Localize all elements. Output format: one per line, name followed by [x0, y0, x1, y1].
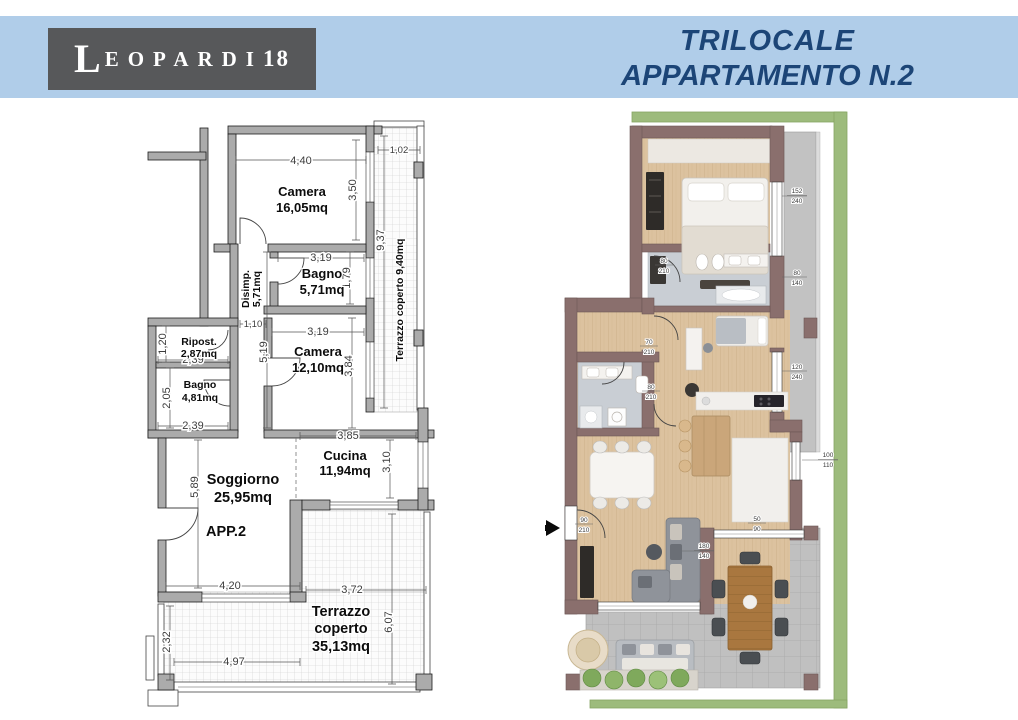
dim-label: 3,72: [341, 584, 362, 596]
wardrobe: [646, 172, 664, 230]
floorplan-flyer: L EOPARDI 18 TRILOCALE APPARTAMENTO N.2: [0, 0, 1018, 720]
room-area-bagno2: 4,81mq: [182, 392, 218, 404]
dining-chair: [593, 441, 607, 453]
dim-label: 3,10: [381, 451, 393, 472]
outdoor-chair: [740, 652, 760, 664]
window-size-label: 50: [753, 516, 761, 523]
technical-floor-plan-2d: 4,40 1,02 3,50 9,37 3,19 1,79 1,10 5,19 …: [140, 110, 460, 715]
outdoor-chair: [740, 552, 760, 564]
room-area-camera2: 12,10mq: [292, 360, 344, 375]
window-size-label: 120: [792, 364, 803, 371]
dim-label: 1,20: [157, 333, 169, 354]
door-size-label: 80: [660, 258, 668, 265]
window-size-label: 110: [823, 462, 834, 469]
window-size-label: 240: [792, 374, 803, 381]
dim-label: 2,32: [161, 631, 173, 652]
room-area-soggiorno: 25,95mq: [214, 490, 272, 506]
dim-label: 4,97: [223, 656, 244, 668]
door-size-label: 90: [580, 517, 588, 524]
room-label-ripost: Ripost.: [181, 336, 217, 348]
dim-label: 3,19: [310, 252, 331, 264]
room-label-terrazzo-2: coperto: [314, 621, 367, 637]
door-size-label: 210: [644, 349, 655, 356]
room-area-cucina: 11,94mq: [319, 463, 370, 478]
door-size-label: 70: [645, 339, 653, 346]
outdoor-chair: [775, 580, 788, 598]
outdoor-sofa: [616, 640, 694, 674]
toilet-2: [636, 376, 648, 393]
entrance-arrow-icon: [546, 520, 560, 536]
logo-box: L EOPARDI 18: [48, 28, 316, 90]
dim-label: 3,50: [347, 179, 359, 200]
door-size-label: 210: [579, 527, 590, 534]
dining-chair: [615, 497, 629, 509]
toilet: [696, 254, 708, 270]
room-label-cucina: Cucina: [323, 448, 367, 463]
desk: [686, 328, 702, 370]
outdoor-chair: [712, 580, 725, 598]
room-label-terrazzo-1: Terrazzo: [312, 604, 371, 620]
outdoor-chair: [775, 618, 788, 636]
page-title: TRILOCALE APPARTAMENTO N.2: [555, 24, 980, 95]
window-size-label: 90: [753, 526, 761, 533]
dim-label: 2,39: [182, 420, 203, 432]
window-size-label: 240: [792, 198, 803, 205]
room-label-soggiorno: Soggiorno: [207, 472, 280, 488]
hanging-chair: [568, 630, 608, 670]
terrace-pillar: [804, 318, 817, 338]
room-label-bagno2: Bagno: [184, 379, 217, 391]
room-area-ripost: 2,87mq: [181, 348, 217, 360]
room-label-camera1: Camera: [278, 184, 326, 199]
dining-chair: [593, 497, 607, 509]
dim-label: 1,02: [390, 145, 409, 156]
kitchen-island-table: [692, 416, 730, 476]
kitchen-peninsula: [732, 438, 788, 522]
planter-bushes: [580, 669, 698, 690]
dining-chair: [637, 497, 651, 509]
stool: [679, 460, 691, 472]
logo-text: EOPARDI: [105, 47, 263, 72]
header-banner: L EOPARDI 18 TRILOCALE APPARTAMENTO N.2: [0, 16, 1018, 98]
dining-chair: [637, 441, 651, 453]
pouf: [646, 544, 662, 560]
dining-table: [590, 452, 654, 498]
room-area-camera1: 16,05mq: [276, 200, 328, 215]
window-size-label: 100: [823, 452, 834, 459]
window-size-label: 140: [699, 553, 710, 560]
room-area-terrazzo: 35,13mq: [312, 639, 370, 655]
dining-chair: [615, 441, 629, 453]
dim-label: 5,19: [258, 341, 270, 362]
dim-label: 3,85: [337, 430, 358, 442]
dim-label: 4,20: [219, 580, 240, 592]
door-size-label: 210: [646, 394, 657, 401]
apartment-number-label: APP.2: [206, 524, 246, 540]
stool: [679, 440, 691, 452]
title-line-2: APPARTAMENTO N.2: [555, 59, 980, 94]
tv-unit: [580, 546, 594, 598]
bidet: [712, 254, 724, 270]
logo-initial: L: [74, 39, 101, 79]
room-label-terrazzo-lato: Terrazzo coperto 9,40mq: [394, 239, 406, 362]
outdoor-chair: [712, 618, 725, 636]
window-size-label: 152: [792, 188, 803, 195]
window-size-label: 180: [699, 543, 710, 550]
room-area-disimp: 5,71mq: [251, 271, 263, 307]
kitchen-sink: [702, 397, 710, 405]
door-size-label: 210: [659, 268, 670, 275]
room-area-bagno1: 5,71mq: [300, 282, 345, 297]
room-label-bagno1: Bagno: [302, 266, 343, 281]
room-label-camera2: Camera: [294, 344, 342, 359]
rendered-floor-plan-3d: 152 240 80 140 120 240 100 110 50 90 180…: [545, 105, 865, 715]
window-size-label: 140: [792, 280, 803, 287]
dim-label: 3,19: [307, 326, 328, 338]
desk-chair: [703, 343, 713, 353]
door-size-label: 80: [647, 384, 655, 391]
stool: [679, 420, 691, 432]
dim-label: 2,05: [161, 387, 173, 408]
washing-machine: [608, 408, 626, 426]
title-line-1: TRILOCALE: [555, 24, 980, 59]
dim-label: 1,10: [244, 319, 263, 330]
dim-label: 4,40: [290, 155, 311, 167]
dim-label: 6,07: [383, 611, 395, 632]
logo-number: 18: [263, 46, 290, 72]
dim-label: 9,37: [375, 229, 387, 250]
double-bed: [682, 178, 768, 289]
window-size-label: 80: [793, 270, 801, 277]
dim-label: 5,89: [189, 476, 201, 497]
dim-label: 3,84: [343, 355, 355, 376]
